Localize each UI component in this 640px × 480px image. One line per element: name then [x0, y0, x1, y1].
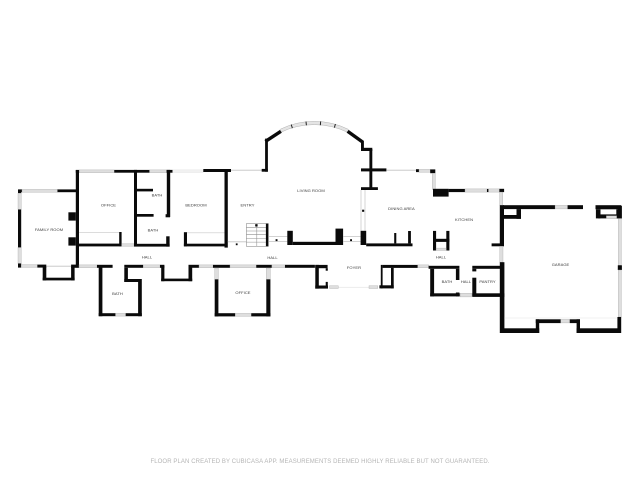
- svg-text:PANTRY: PANTRY: [479, 279, 496, 284]
- svg-text:HALL: HALL: [436, 255, 447, 260]
- svg-text:BATH: BATH: [152, 193, 163, 198]
- svg-text:KITCHEN: KITCHEN: [455, 217, 473, 222]
- svg-text:FLOOR PLAN CREATED BY CUBICASA: FLOOR PLAN CREATED BY CUBICASA APP. MEAS…: [150, 459, 489, 465]
- svg-text:FOYER: FOYER: [347, 265, 361, 270]
- svg-text:OFFICE: OFFICE: [235, 290, 250, 295]
- svg-text:LIVING ROOM: LIVING ROOM: [297, 188, 325, 193]
- svg-text:GARAGE: GARAGE: [552, 262, 570, 267]
- svg-text:OFFICE: OFFICE: [101, 202, 116, 207]
- svg-text:HALL: HALL: [142, 255, 153, 260]
- svg-text:BATH: BATH: [442, 279, 453, 284]
- svg-text:BATH: BATH: [112, 291, 123, 296]
- svg-text:BEDROOM: BEDROOM: [185, 203, 207, 208]
- svg-text:ENTRY: ENTRY: [241, 203, 255, 208]
- svg-text:DINING AREA: DINING AREA: [388, 206, 415, 211]
- svg-text:FAMILY ROOM: FAMILY ROOM: [35, 227, 64, 232]
- svg-text:HALL: HALL: [461, 279, 472, 284]
- svg-text:BATH: BATH: [148, 228, 159, 233]
- svg-text:HALL: HALL: [267, 255, 278, 260]
